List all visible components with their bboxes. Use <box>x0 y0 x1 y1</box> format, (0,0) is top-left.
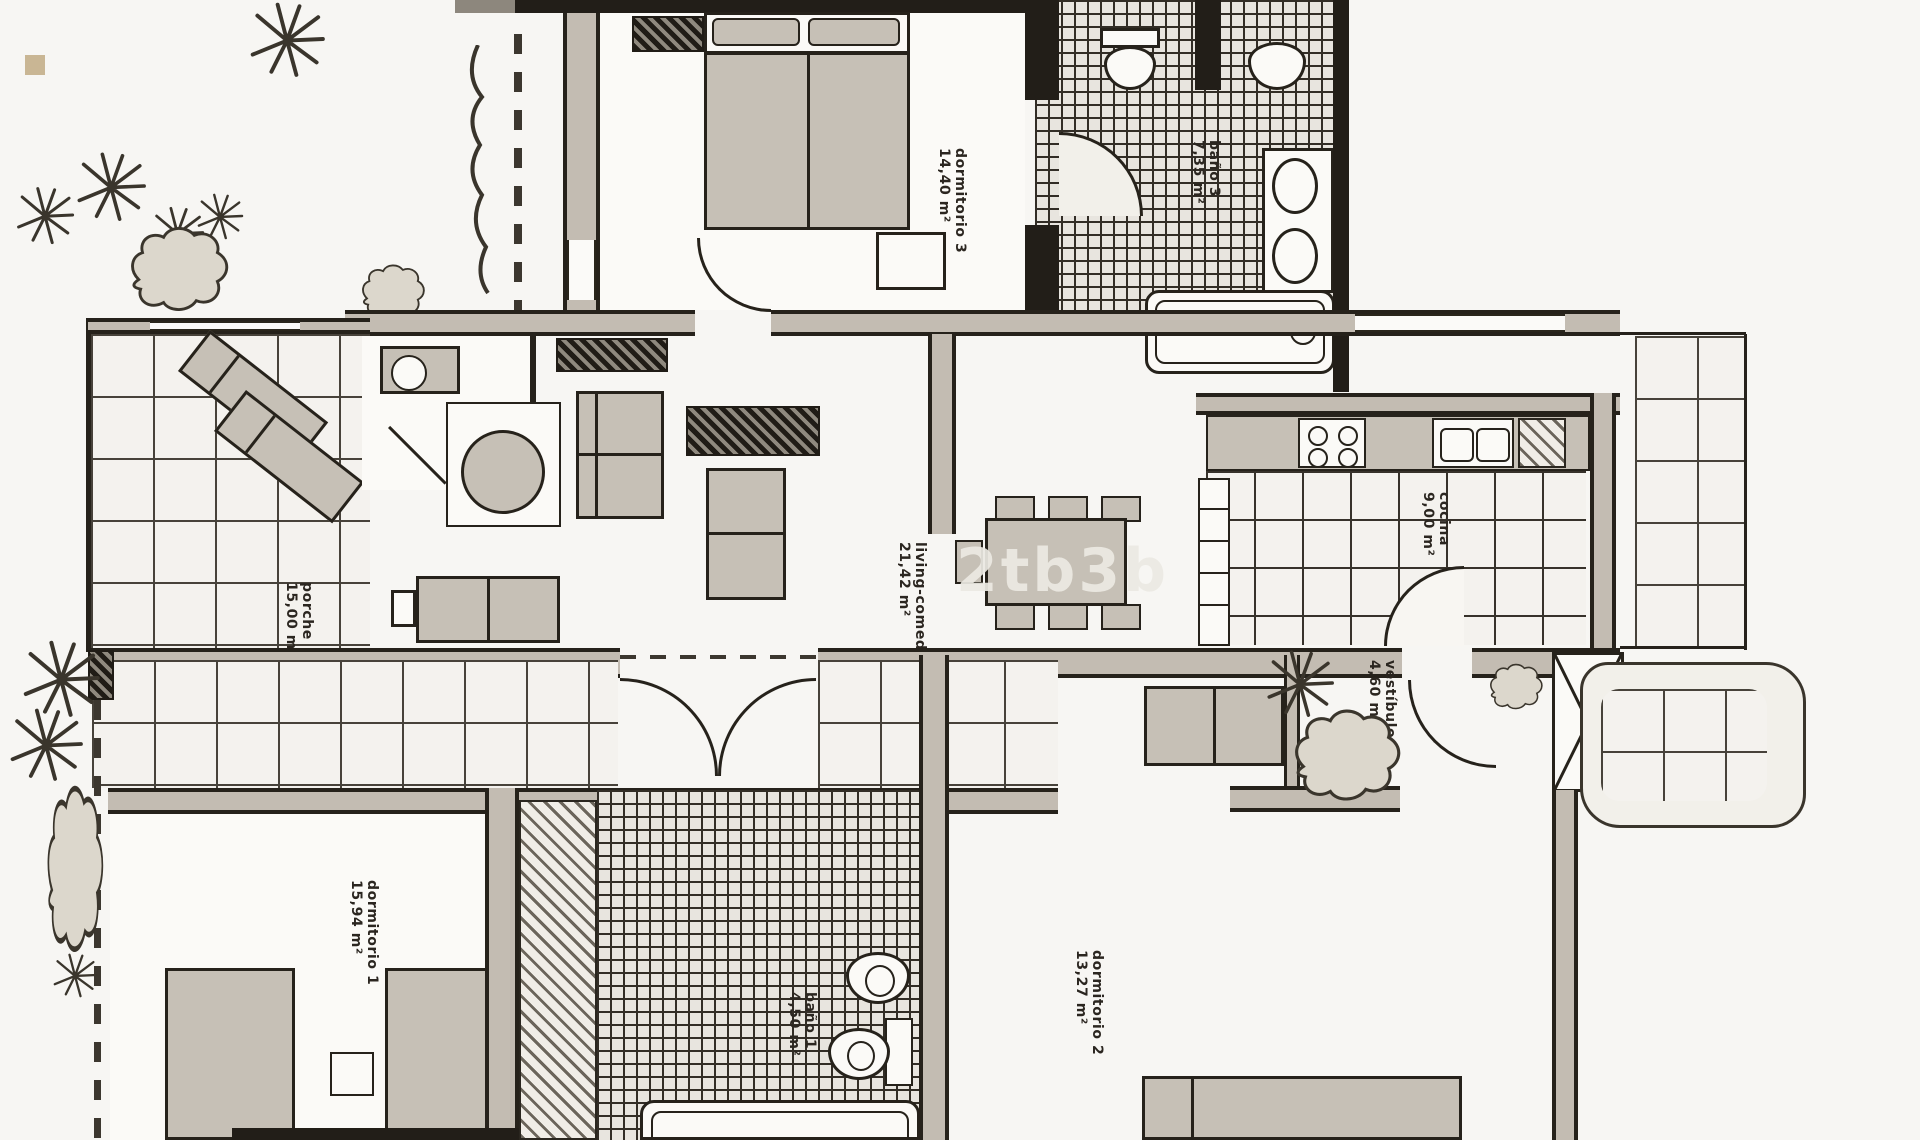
single-bed <box>165 968 295 1140</box>
toilet-bowl <box>865 965 895 997</box>
planter-tiles <box>1601 689 1767 801</box>
bathtub <box>640 1100 920 1140</box>
room-label-dormitorio-2: dormitorio 2 13,27 m² <box>1073 950 1105 1055</box>
pillow <box>808 18 900 46</box>
room-area: 9,00 m² <box>1420 492 1436 556</box>
room-name: dormitorio 2 <box>1089 950 1105 1055</box>
double-bed <box>704 52 910 230</box>
bush-icon <box>1284 702 1410 806</box>
room-label-dormitorio-3: dormitorio 3 14,40 m² <box>936 148 968 253</box>
wardrobe-sliding <box>519 800 597 1140</box>
burner <box>1338 448 1358 468</box>
dishwasher <box>1518 418 1566 468</box>
wardrobe-block <box>632 16 704 52</box>
lower-terrace-tiles <box>92 660 618 788</box>
nightstand <box>330 1052 374 1096</box>
sofa-cushion-line <box>487 579 490 640</box>
washbasin <box>391 355 427 391</box>
branch-icon <box>448 45 508 325</box>
sofa-3seat <box>576 391 664 519</box>
planter-outline <box>1580 662 1806 828</box>
sofa-cushion-line <box>579 453 661 456</box>
right-terrace-tiles <box>1635 336 1745 648</box>
wall <box>1196 393 1620 415</box>
washbasin-counter <box>380 346 460 394</box>
room-name: baño 3 <box>1206 140 1222 204</box>
wall <box>1025 225 1059 310</box>
plant-icon <box>244 0 330 78</box>
wall <box>1590 393 1616 650</box>
bush-icon <box>1468 660 1564 712</box>
tv-unit <box>686 406 820 456</box>
bush-icon <box>42 772 108 962</box>
plant-icon <box>75 150 147 222</box>
wall <box>485 788 519 1140</box>
door-arc <box>620 678 718 776</box>
room-area: 14,40 m² <box>936 148 952 253</box>
wall <box>455 0 515 13</box>
bathtub-inner <box>651 1111 909 1140</box>
bidet-bowl <box>847 1041 875 1071</box>
wall <box>928 334 956 534</box>
floor-plan-page: dormitorio 3 14,40 m² baño 3 7,35 m² p <box>0 0 1920 1140</box>
terrace-edge-line <box>1620 332 1746 335</box>
double-bed <box>1142 1076 1462 1140</box>
wall <box>919 655 949 1140</box>
lounger-line <box>245 415 276 453</box>
dining-chair <box>1101 604 1141 630</box>
sink-bowl <box>1476 428 1510 462</box>
room-label-bano-3: baño 3 7,35 m² <box>1190 140 1222 204</box>
room-area: 4,50 m² <box>786 992 802 1056</box>
french-door-dashed-line <box>620 655 816 659</box>
burner <box>1308 448 1328 468</box>
room-area: 15,00 m² <box>283 582 299 657</box>
room-label-bano-1: baño 1 4,50 m² <box>786 992 818 1056</box>
terrace-edge-line <box>1744 334 1747 650</box>
door-arc <box>718 678 816 776</box>
shelf-closet <box>1198 478 1230 646</box>
wall <box>1025 0 1059 100</box>
room-name: cocina <box>1436 492 1452 556</box>
bush-icon <box>118 220 240 316</box>
wall <box>345 310 695 336</box>
plant-icon <box>15 185 75 245</box>
room-area: 7,35 m² <box>1190 140 1206 204</box>
room-label-porche: porche 15,00 m² <box>283 582 315 657</box>
terrace-edge-line <box>1620 646 1746 649</box>
window <box>1355 314 1565 332</box>
wall <box>771 310 1035 336</box>
plant-icon <box>52 952 98 998</box>
lounger-line <box>209 355 240 393</box>
sofa-back-line <box>595 394 598 516</box>
room-label-cocina: cocina 9,00 m² <box>1420 492 1452 556</box>
room-name: dormitorio 1 <box>364 880 380 985</box>
room-label-dormitorio-1: dormitorio 1 15,94 m² <box>348 880 380 985</box>
pillow <box>712 18 800 46</box>
round-table <box>461 430 545 514</box>
window <box>150 321 300 331</box>
room-area: 15,94 m² <box>348 880 364 985</box>
room-name: baño 1 <box>802 992 818 1056</box>
scan-color-swatch <box>25 55 45 75</box>
bed-divider-line <box>1191 1079 1194 1137</box>
sink-bowl <box>1440 428 1474 462</box>
room-area: 13,27 m² <box>1073 950 1089 1055</box>
side-table <box>391 590 416 627</box>
wardrobe-line <box>1213 689 1216 763</box>
stove <box>1298 418 1366 468</box>
wall <box>1195 0 1221 90</box>
window <box>567 240 596 300</box>
watermark-text: 2tb3b <box>956 536 1169 606</box>
burner <box>1308 426 1328 446</box>
room-name: dormitorio 3 <box>952 148 968 253</box>
plant-icon <box>8 706 84 782</box>
kitchen-sink <box>1432 418 1514 468</box>
wall <box>1552 790 1578 1140</box>
sink-basin <box>1272 158 1318 214</box>
overhang-dashed-line <box>514 34 522 330</box>
bed-divider-line <box>807 55 810 227</box>
sofa-bottom <box>416 576 560 643</box>
sink-basin <box>1272 228 1318 284</box>
dining-chair <box>1048 604 1088 630</box>
sideboard-block <box>556 338 668 372</box>
toilet-tank <box>1100 28 1160 48</box>
sofa-2seat <box>706 468 786 600</box>
sofa-cushion-line <box>709 532 783 535</box>
room-name: porche <box>299 582 315 657</box>
dining-chair <box>995 604 1035 630</box>
burner <box>1338 426 1358 446</box>
